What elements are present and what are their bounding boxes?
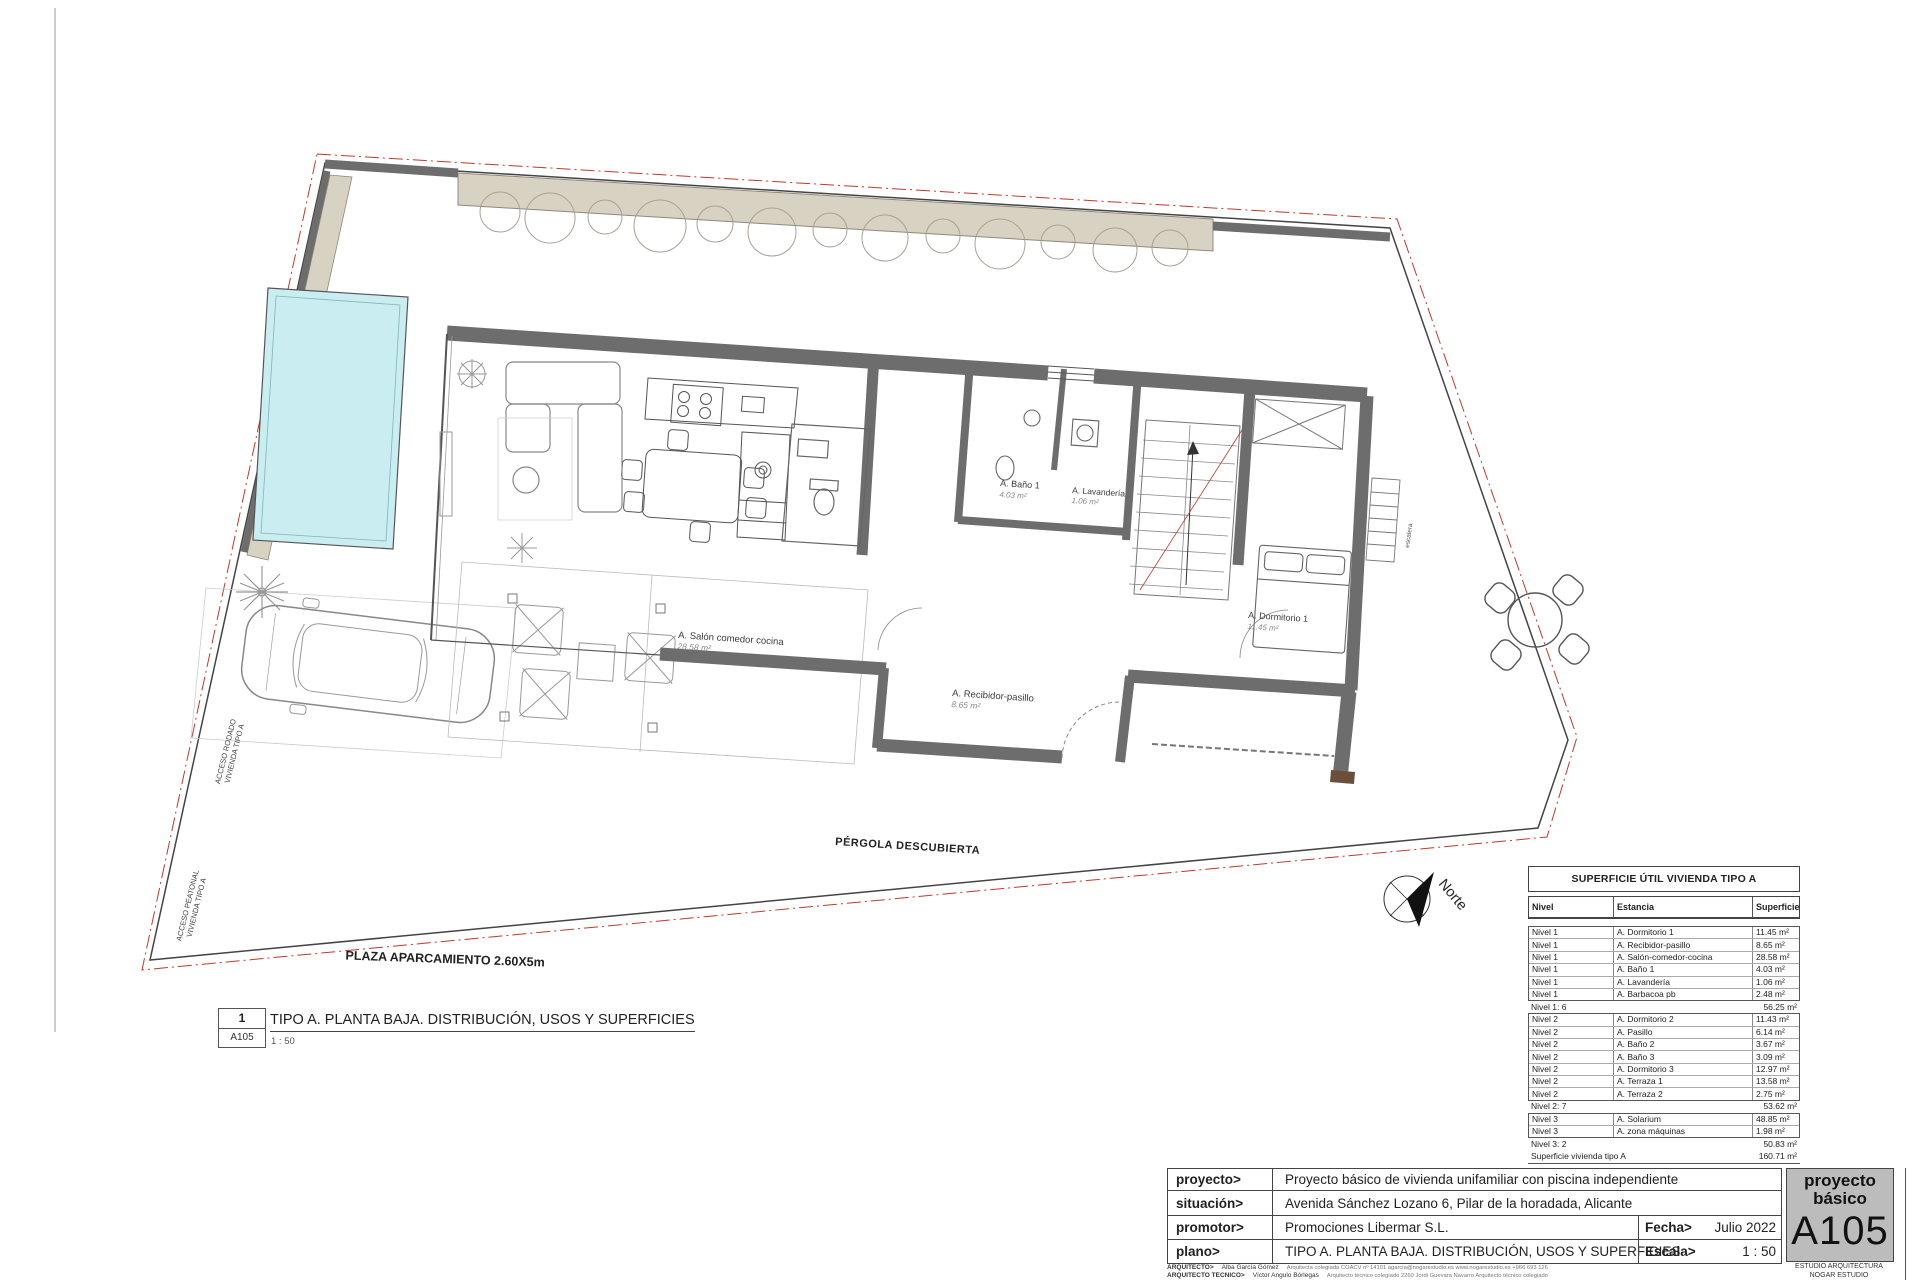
cell-superficie: 3.67 m² <box>1753 1039 1799 1050</box>
cell-estancia: A. Baño 1 <box>1614 964 1753 975</box>
room-area-lavanderia: 1.06 m² <box>1071 496 1099 507</box>
proyecto-value: Proyecto básico de vivienda unifamiliar … <box>1273 1172 1678 1187</box>
cell-estancia: A. Recibidor-pasillo <box>1614 939 1753 950</box>
drawing-number: 1 <box>219 1009 265 1029</box>
fecha-value: Julio 2022 <box>1714 1220 1782 1235</box>
stamp-right-rule <box>1905 1168 1906 1280</box>
level2-group: Nivel 2A. Dormitorio 211.43 m² Nivel 2A.… <box>1528 1013 1800 1101</box>
arquitecto-tecnico-name: Víctor Angulo Bórlegas <box>1253 1272 1319 1280</box>
plan-sheet: Norte A. Salón comedor cocina 28.58 m² A… <box>0 0 1920 1280</box>
arquitecto-tecnico-label: ARQUITECTO TÉCNICO> <box>1167 1272 1245 1280</box>
drawing-number-box: 1 A105 <box>218 1008 266 1048</box>
cell-superficie: 11.45 m² <box>1753 927 1799 938</box>
stamp-line1: proyecto <box>1787 1172 1893 1190</box>
cell-nivel: Nivel 1 <box>1529 939 1614 950</box>
cell-nivel: Nivel 2 <box>1529 1014 1614 1025</box>
architect-strip: ARQUITECTO> Alba García Gómez Arquitecta… <box>1167 1264 1780 1280</box>
titleblock-row-situacion: situación> Avenida Sánchez Lozano 6, Pil… <box>1168 1191 1781 1216</box>
cell-superficie: 11.43 m² <box>1753 1014 1799 1025</box>
subtotal-label: Nivel 3: 2 <box>1528 1139 1760 1150</box>
cell-estancia: A. zona máquinas <box>1614 1126 1753 1137</box>
titleblock-row-plano: plano> TIPO A. PLANTA BAJA. DISTRIBUCIÓN… <box>1168 1240 1781 1264</box>
titleblock-row-proyecto: proyecto> Proyecto básico de vivienda un… <box>1168 1169 1781 1191</box>
cell-superficie: 6.14 m² <box>1753 1027 1799 1038</box>
table-row: Nivel 2A. Baño 33.09 m² <box>1529 1050 1799 1062</box>
stamp-line2: básico <box>1787 1190 1893 1208</box>
fecha-label: Fecha> <box>1639 1220 1692 1235</box>
table-row: Nivel 2A. Dormitorio 312.97 m² <box>1529 1063 1799 1075</box>
cell-estancia: A. Dormitorio 1 <box>1614 927 1753 938</box>
cell-nivel: Nivel 1 <box>1529 952 1614 963</box>
cell-nivel: Nivel 2 <box>1529 1051 1614 1062</box>
col-header-nivel: Nivel <box>1529 897 1614 917</box>
room-area-recibidor: 8.65 m² <box>951 699 982 711</box>
fecha-cell: Fecha> Julio 2022 <box>1638 1216 1782 1239</box>
north-label: Norte <box>1435 876 1470 913</box>
situacion-value: Avenida Sánchez Lozano 6, Pilar de la ho… <box>1273 1196 1632 1211</box>
promotor-value: Promociones Libermar S.L. <box>1273 1220 1449 1235</box>
drawing-sheet-ref: A105 <box>219 1029 265 1046</box>
project-stamp: proyecto básico A105 <box>1786 1168 1894 1262</box>
subtotal-value: 56.25 m² <box>1760 1002 1800 1013</box>
level3-group: Nivel 3A. Solarium48.85 m² Nivel 3A. zon… <box>1528 1113 1800 1139</box>
cell-nivel: Nivel 2 <box>1529 1088 1614 1099</box>
cell-superficie: 1.06 m² <box>1753 977 1799 988</box>
total-row: Superficie vivienda tipo A160.71 m² <box>1528 1150 1800 1164</box>
cell-superficie: 13.58 m² <box>1753 1076 1799 1087</box>
studio-line2: NOGAR ESTUDIO <box>1784 1272 1894 1280</box>
cell-nivel: Nivel 3 <box>1529 1114 1614 1125</box>
cell-superficie: 4.03 m² <box>1753 964 1799 975</box>
cell-estancia: A. Pasillo <box>1614 1027 1753 1038</box>
table-row: Nivel 1A. Dormitorio 111.45 m² <box>1529 927 1799 938</box>
table-row: Nivel 2A. Dormitorio 211.43 m² <box>1529 1014 1799 1025</box>
cell-nivel: Nivel 2 <box>1529 1064 1614 1075</box>
table-row: Nivel 1A. Baño 14.03 m² <box>1529 963 1799 975</box>
table-row: Nivel 1A. Recibidor-pasillo8.65 m² <box>1529 938 1799 950</box>
cell-superficie: 2.48 m² <box>1753 989 1799 1000</box>
plano-value: TIPO A. PLANTA BAJA. DISTRIBUCIÓN, USOS … <box>1273 1244 1680 1259</box>
garden-wall-cap <box>1330 770 1355 784</box>
subtotal-row: Nivel 2: 753.62 m² <box>1528 1101 1800 1113</box>
cell-superficie: 3.09 m² <box>1753 1052 1799 1063</box>
escala-label: Escala> <box>1639 1244 1696 1259</box>
cell-nivel: Nivel 1 <box>1529 927 1614 938</box>
subtotal-value: 53.62 m² <box>1760 1101 1800 1112</box>
subtotal-row: Nivel 1: 656.25 m² <box>1528 1001 1800 1013</box>
area-table-title: SUPERFICIE ÚTIL VIVIENDA TIPO A <box>1528 866 1800 892</box>
promotor-label: promotor> <box>1168 1216 1273 1239</box>
level1-group: Nivel 1A. Dormitorio 111.45 m² Nivel 1A.… <box>1528 926 1800 1001</box>
cell-superficie: 8.65 m² <box>1753 940 1799 951</box>
col-header-superficie: Superficie útil <box>1753 902 1799 913</box>
arquitecto-info: Arquitecta colegiada COACV nº 14101 agar… <box>1287 1264 1548 1272</box>
title-block: proyecto> Proyecto básico de vivienda un… <box>1167 1168 1782 1264</box>
cell-estancia: A. Barbacoa pb <box>1614 989 1753 1000</box>
area-table-header: Nivel Estancia Superficie útil <box>1528 896 1800 919</box>
subtotal-value: 50.83 m² <box>1760 1139 1800 1150</box>
drawing-scale: 1 : 50 <box>271 1036 295 1047</box>
table-row: Nivel 3A. zona máquinas1.98 m² <box>1529 1125 1799 1137</box>
cell-estancia: A. Baño 2 <box>1614 1039 1753 1050</box>
table-row: Nivel 2A. Pasillo6.14 m² <box>1529 1026 1799 1038</box>
cell-estancia: A. Salón-comedor-cocina <box>1614 952 1753 963</box>
escala-value: 1 : 50 <box>1742 1244 1782 1259</box>
proyecto-label: proyecto> <box>1168 1169 1273 1190</box>
area-table: SUPERFICIE ÚTIL VIVIENDA TIPO A Nivel Es… <box>1528 866 1800 1164</box>
table-row: Nivel 2A. Terraza 113.58 m² <box>1529 1075 1799 1087</box>
plano-label: plano> <box>1168 1240 1273 1263</box>
pool <box>253 288 408 549</box>
subtotal-row: Nivel 3: 250.83 m² <box>1528 1138 1800 1150</box>
cell-estancia: A. Solarium <box>1614 1114 1753 1125</box>
studio-line1: ESTUDIO ARQUITECTURA <box>1784 1263 1894 1272</box>
cell-estancia: A. Terraza 1 <box>1614 1076 1753 1087</box>
cell-estancia: A. Baño 3 <box>1614 1051 1753 1062</box>
cell-estancia: A. Terraza 2 <box>1614 1088 1753 1099</box>
north-compass-icon <box>1384 872 1434 927</box>
cell-nivel: Nivel 3 <box>1529 1126 1614 1137</box>
drawing-title: TIPO A. PLANTA BAJA. DISTRIBUCIÓN, USOS … <box>270 1012 695 1032</box>
arquitecto-label: ARQUITECTO> <box>1167 1264 1214 1272</box>
cell-superficie: 28.58 m² <box>1753 952 1799 963</box>
plaza-aparcamiento-label: PLAZA APARCAMIENTO 2.60X5m <box>345 949 545 970</box>
escala-cell: Escala> 1 : 50 <box>1638 1240 1782 1263</box>
table-row: Nivel 3A. Solarium48.85 m² <box>1529 1114 1799 1125</box>
total-value: 160.71 m² <box>1756 1151 1800 1162</box>
cell-nivel: Nivel 2 <box>1529 1027 1614 1038</box>
studio-name: ESTUDIO ARQUITECTURA NOGAR ESTUDIO <box>1784 1263 1894 1280</box>
col-header-estancia: Estancia <box>1614 897 1753 917</box>
cell-superficie: 48.85 m² <box>1753 1114 1799 1125</box>
table-row: Nivel 1A. Barbacoa pb2.48 m² <box>1529 988 1799 1000</box>
cell-nivel: Nivel 1 <box>1529 989 1614 1000</box>
cell-nivel: Nivel 2 <box>1529 1039 1614 1050</box>
cell-nivel: Nivel 1 <box>1529 964 1614 975</box>
arquitecto-line: ARQUITECTO> Alba García Gómez Arquitecta… <box>1167 1264 1780 1272</box>
titleblock-row-promotor: promotor> Promociones Libermar S.L. Fech… <box>1168 1216 1781 1240</box>
table-row: Nivel 1A. Salón-comedor-cocina28.58 m² <box>1529 951 1799 963</box>
situacion-label: situación> <box>1168 1191 1273 1215</box>
cell-superficie: 1.98 m² <box>1753 1126 1799 1137</box>
subtotal-label: Nivel 2: 7 <box>1528 1101 1760 1112</box>
table-row: Nivel 2A. Baño 23.67 m² <box>1529 1038 1799 1050</box>
table-row: Nivel 2A. Terraza 22.75 m² <box>1529 1087 1799 1099</box>
cell-nivel: Nivel 1 <box>1529 977 1614 988</box>
subtotal-label: Nivel 1: 6 <box>1528 1002 1760 1013</box>
cell-estancia: A. Dormitorio 2 <box>1614 1014 1753 1025</box>
table-row: Nivel 1A. Lavandería1.06 m² <box>1529 976 1799 988</box>
cell-superficie: 2.75 m² <box>1753 1089 1799 1100</box>
cell-estancia: A. Lavandería <box>1614 977 1753 988</box>
arquitecto-tecnico-info: Arquitecto técnico colegiado 2260 Jordi … <box>1327 1272 1548 1280</box>
total-label: Superficie vivienda tipo A <box>1528 1151 1756 1162</box>
cell-superficie: 12.97 m² <box>1753 1064 1799 1075</box>
cell-estancia: A. Dormitorio 3 <box>1614 1064 1753 1075</box>
cell-nivel: Nivel 2 <box>1529 1076 1614 1087</box>
room-area-bano1: 4.03 m² <box>999 490 1027 501</box>
arquitecto-tecnico-line: ARQUITECTO TÉCNICO> Víctor Angulo Bórleg… <box>1167 1272 1780 1280</box>
arquitecto-name: Alba García Gómez <box>1222 1264 1279 1272</box>
stamp-sheet-code: A105 <box>1787 1208 1893 1254</box>
